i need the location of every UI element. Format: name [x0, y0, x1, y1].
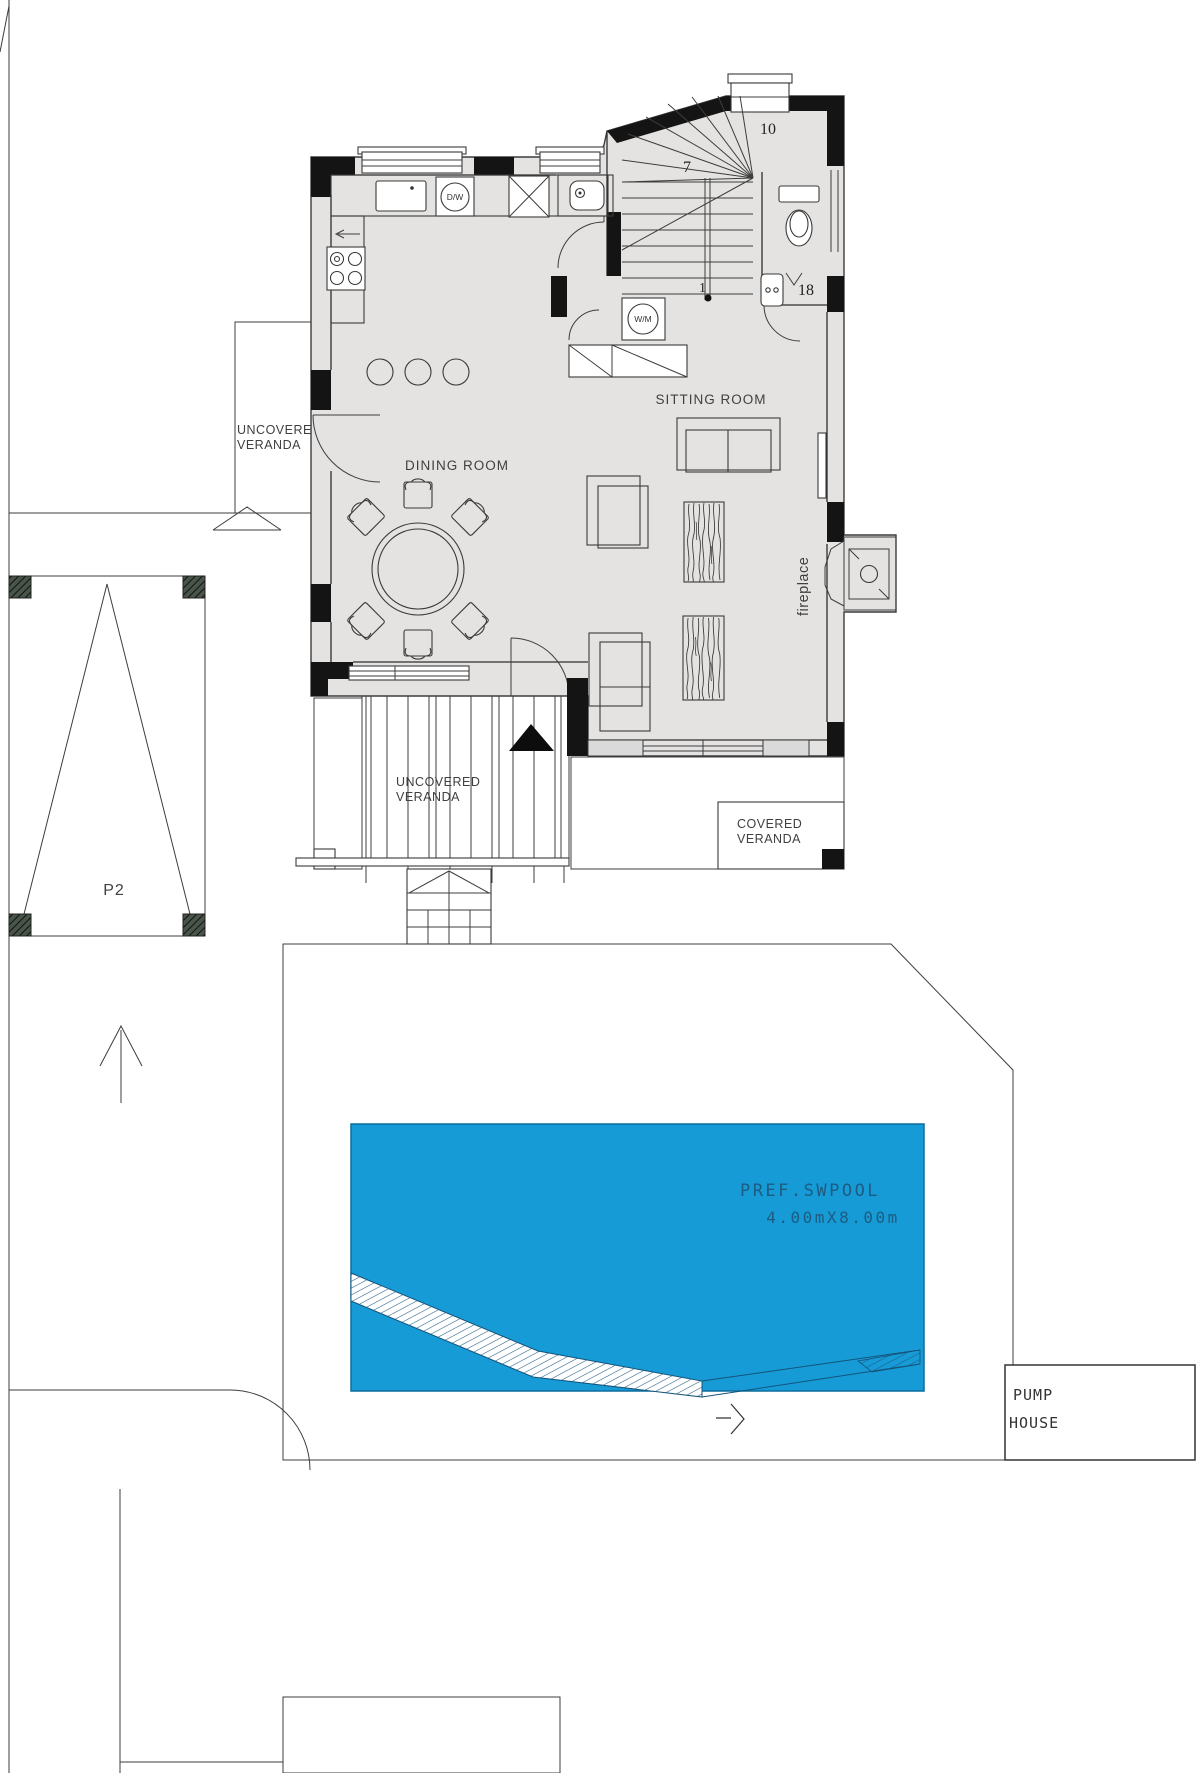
parking-p2: P2: [9, 576, 205, 936]
stair-number-10: 10: [760, 121, 776, 138]
deck-side-tiles: [314, 698, 362, 869]
parking-label: P2: [103, 882, 125, 899]
stair-number-7: 7: [683, 159, 691, 176]
sitting-window: [588, 740, 643, 756]
fireplace-label: fireplace: [796, 557, 812, 616]
wall-pier: [827, 96, 844, 166]
wall-pier: [551, 276, 567, 317]
covered-veranda-label-1: COVERED: [737, 817, 802, 831]
swimming-pool: [351, 1124, 924, 1391]
wall-pier: [607, 212, 621, 276]
site-road-curve: [9, 1390, 310, 1470]
pool-area: PREF.SWPOOL 4.00mX8.00m PUMP HOUSE: [283, 944, 1195, 1773]
veranda-left-label-1: UNCOVERED: [237, 423, 321, 437]
wc-cabinet: [761, 274, 783, 306]
dining-room-label: DINING ROOM: [405, 458, 509, 473]
parking-post: [183, 914, 205, 936]
hob: [327, 247, 365, 290]
floor-plan: P2 PREF.SWPOOL 4.00mX8.00m PUMP HOUSE UN…: [0, 0, 1200, 1773]
wall-pier: [311, 662, 328, 696]
stair-number-18: 18: [798, 282, 814, 299]
kitchen-window-2: [536, 147, 604, 173]
deck-direction-arrow: [716, 1404, 744, 1434]
veranda-bottom-label-2: VERANDA: [396, 790, 460, 804]
wall-pier: [311, 584, 331, 622]
covered-veranda-label-2: VERANDA: [737, 832, 801, 846]
uncovered-veranda-left: UNCOVERED VERANDA: [213, 322, 321, 530]
sitting-window: [763, 740, 809, 756]
stair-number-1: 1: [699, 281, 706, 296]
deck-steps: [407, 869, 491, 944]
covered-veranda-column: [822, 849, 844, 869]
lower-tile-slab: [283, 1697, 560, 1773]
tower-bay-window: [728, 74, 792, 112]
floor-plan-svg: P2 PREF.SWPOOL 4.00mX8.00m PUMP HOUSE UN…: [0, 0, 1200, 1773]
road-direction-arrow: [100, 1026, 142, 1103]
washing-machine-label: W/M: [634, 314, 651, 324]
veranda-left-roof-mark: [213, 507, 281, 530]
dining-window: [349, 666, 469, 680]
parking-post: [183, 576, 205, 598]
house: [311, 74, 896, 756]
wall-pier: [311, 157, 355, 175]
east-window-ledge: [818, 433, 826, 498]
covered-veranda: COVERED VERANDA: [571, 757, 844, 869]
fireplace-pier: [827, 502, 844, 542]
veranda-left-label-2: VERANDA: [237, 438, 301, 452]
pool-name-label: PREF.SWPOOL: [740, 1181, 880, 1201]
pump-house: PUMP HOUSE: [1005, 1365, 1195, 1460]
wall-pier: [311, 370, 331, 410]
site-boundary: [0, 0, 313, 1773]
understair-storage: [569, 345, 687, 377]
entrance-arrow: [509, 724, 554, 751]
parking-post: [9, 914, 31, 936]
parking-corner-ticks: [9, 914, 205, 936]
uncovered-veranda-bottom: UNCOVERED VERANDA: [296, 696, 569, 944]
kitchen-sink: [376, 181, 426, 211]
veranda-bottom-label-1: UNCOVERED: [396, 775, 480, 789]
wall-pier: [827, 276, 844, 312]
pump-house-label-2: HOUSE: [1009, 1414, 1059, 1432]
veranda-left-tiles: [235, 322, 314, 513]
dishwasher: D/W: [436, 177, 474, 216]
sitting-room-label: SITTING ROOM: [656, 392, 767, 407]
dishwasher-label: D/W: [447, 192, 464, 202]
washing-machine: W/M: [622, 298, 665, 340]
wall-pier: [827, 722, 844, 756]
kitchen-window: [358, 147, 466, 173]
deck-rail: [296, 858, 569, 866]
site-corner-diagonal: [0, 6, 9, 52]
pump-house-label-1: PUMP: [1013, 1386, 1053, 1404]
parking-marking: [20, 584, 194, 930]
pool-size-label: 4.00mX8.00m: [766, 1208, 899, 1227]
pump-house-outline: [1005, 1365, 1195, 1460]
flue-box: [509, 176, 549, 217]
parking-post: [9, 576, 31, 598]
wall-pier: [474, 157, 514, 175]
wall-column: [567, 678, 588, 756]
